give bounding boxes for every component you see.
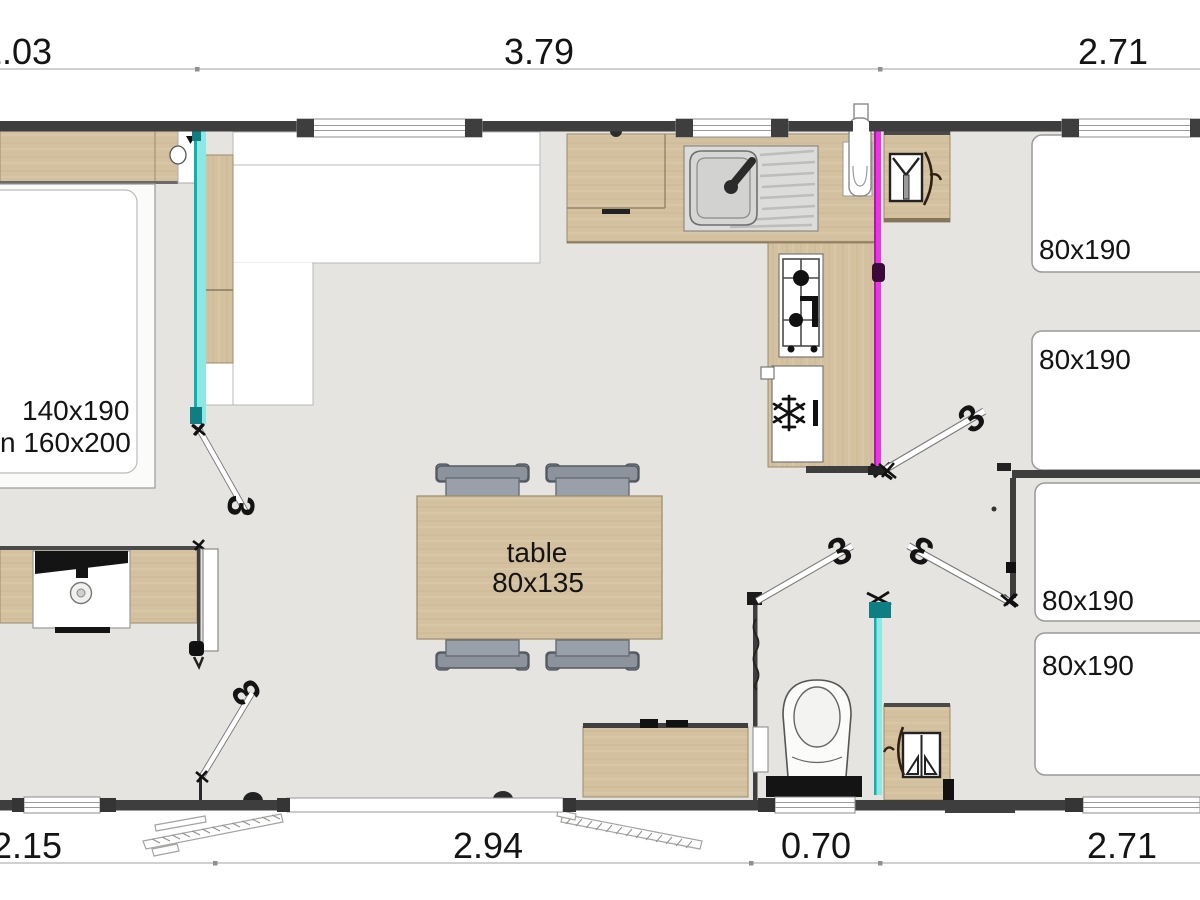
svg-text:80x190: 80x190 — [1042, 650, 1134, 681]
svg-text:80x190: 80x190 — [1039, 234, 1131, 265]
svg-text:80x190: 80x190 — [1039, 344, 1131, 375]
svg-text:1.03: 1.03 — [0, 31, 52, 72]
svg-text:140x190: 140x190 — [22, 395, 129, 426]
svg-text:0.70: 0.70 — [781, 825, 851, 866]
svg-text:2.71: 2.71 — [1087, 825, 1157, 866]
svg-text:80x135: 80x135 — [492, 567, 584, 598]
svg-text:2.71: 2.71 — [1078, 31, 1148, 72]
svg-text:3.79: 3.79 — [504, 31, 574, 72]
svg-text:n 160x200: n 160x200 — [0, 427, 131, 458]
svg-text:80x190: 80x190 — [1042, 585, 1134, 616]
svg-text:2.15: 2.15 — [0, 825, 62, 866]
svg-text:2.94: 2.94 — [453, 825, 523, 866]
svg-text:table: table — [507, 537, 568, 568]
